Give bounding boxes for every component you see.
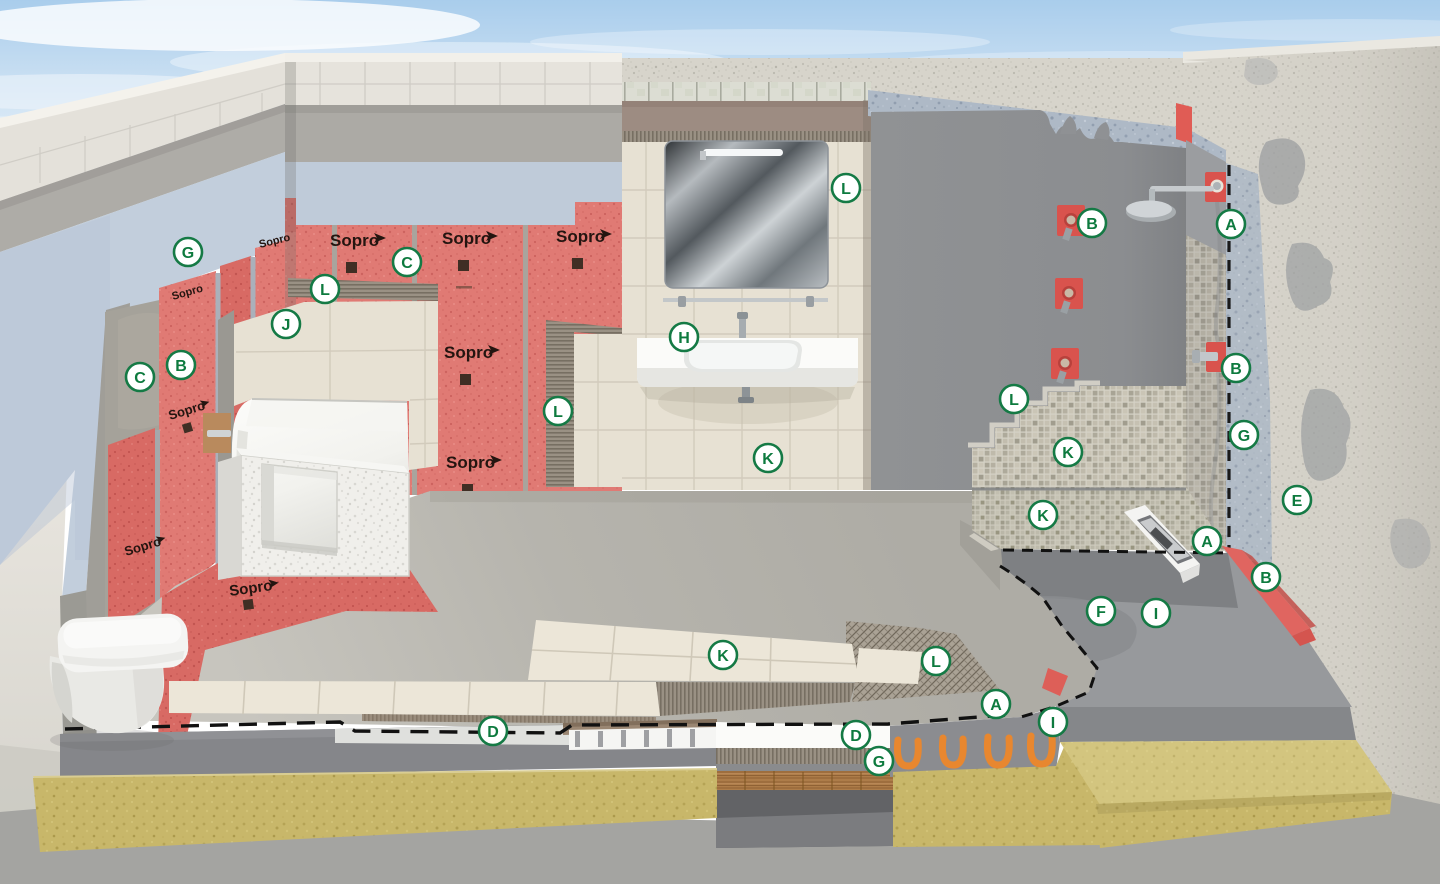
svg-text:K: K: [762, 451, 774, 468]
svg-text:L: L: [553, 404, 563, 421]
svg-text:D: D: [850, 728, 862, 745]
svg-text:L: L: [320, 282, 330, 299]
svg-text:E: E: [1292, 493, 1303, 510]
svg-text:B: B: [1086, 216, 1098, 233]
svg-text:C: C: [401, 255, 413, 272]
svg-text:B: B: [1230, 361, 1242, 378]
svg-text:C: C: [134, 370, 146, 387]
svg-text:L: L: [841, 181, 851, 198]
svg-text:A: A: [1225, 217, 1237, 234]
svg-text:L: L: [931, 654, 941, 671]
svg-text:I: I: [1051, 715, 1055, 732]
svg-text:Sopro: Sopro: [442, 229, 491, 248]
svg-text:Sopro: Sopro: [446, 453, 495, 472]
svg-text:B: B: [1260, 570, 1272, 587]
svg-text:Sopro: Sopro: [330, 231, 379, 250]
svg-text:F: F: [1096, 604, 1106, 621]
svg-text:A: A: [990, 697, 1002, 714]
svg-text:G: G: [182, 245, 194, 262]
svg-text:D: D: [487, 724, 499, 741]
svg-text:B: B: [175, 358, 187, 375]
svg-text:K: K: [1037, 508, 1049, 525]
svg-text:A: A: [1201, 534, 1213, 551]
svg-text:Sopro: Sopro: [444, 343, 493, 362]
svg-text:I: I: [1154, 606, 1158, 623]
svg-text:K: K: [717, 648, 729, 665]
svg-text:G: G: [873, 754, 885, 771]
svg-text:G: G: [1238, 428, 1250, 445]
svg-text:Sopro: Sopro: [556, 227, 605, 246]
svg-text:H: H: [678, 330, 690, 347]
svg-text:K: K: [1062, 445, 1074, 462]
svg-text:J: J: [282, 317, 291, 334]
svg-text:L: L: [1009, 392, 1019, 409]
